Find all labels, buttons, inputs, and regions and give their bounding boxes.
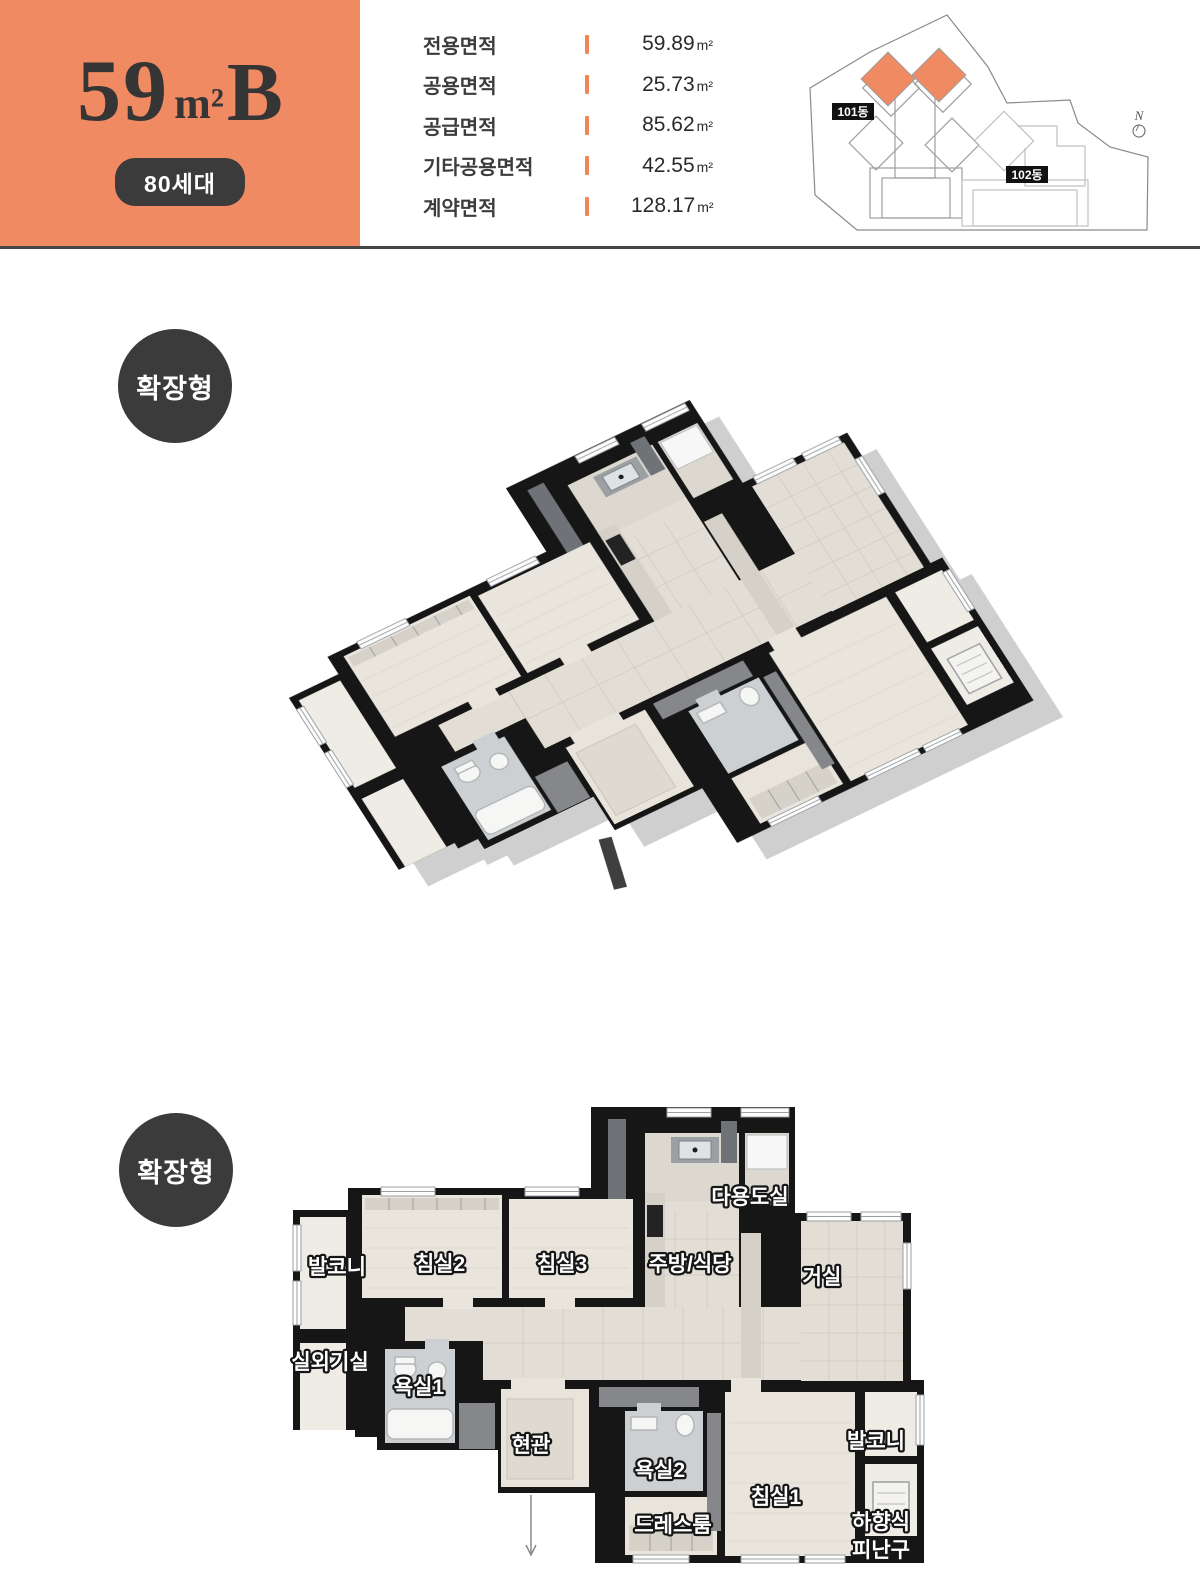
label-bedroom2: 침실2	[415, 1253, 465, 1276]
area-row: 기타공용면적 42.55m²	[423, 146, 713, 187]
label-bath2: 욕실2	[635, 1459, 685, 1482]
label-outdoor-unit: 실외기실	[291, 1351, 368, 1374]
label-balcony-right: 발코니	[847, 1430, 905, 1453]
label-kitchen: 주방/식당	[648, 1253, 731, 1276]
area-label: 전용면적	[423, 30, 543, 59]
area-value: 59.89m²	[631, 32, 713, 56]
label-living: 거실	[803, 1266, 842, 1289]
label-entrance: 현관	[512, 1434, 551, 1457]
entrance-arrow	[526, 1495, 536, 1555]
label-escape-2: 피난구	[852, 1539, 910, 1562]
unit-number: 59	[77, 48, 169, 136]
area-value: 85.62m²	[631, 113, 713, 137]
brochure-page: 59m²B 80세대 전용면적 59.89m² 공용면적 25.73m² 공급면…	[0, 0, 1200, 1592]
building-102-label: 102동	[1011, 168, 1042, 182]
area-table: 전용면적 59.89m² 공용면적 25.73m² 공급면적 85.62m² 기…	[423, 24, 713, 227]
site-boundary	[810, 15, 1148, 230]
divider-tick	[585, 197, 589, 216]
unit-sqm: m²	[174, 82, 224, 126]
label-escape-1: 하향식	[852, 1510, 910, 1534]
divider-tick	[585, 35, 589, 54]
divider-tick	[585, 156, 589, 175]
area-row: 공용면적 25.73m²	[423, 65, 713, 106]
unit-type-title: 59m²B	[77, 48, 283, 136]
households-badge: 80세대	[115, 158, 245, 206]
label-balcony-left: 발코니	[308, 1256, 366, 1279]
divider-tick	[585, 75, 589, 94]
flat-plan-badge: 확장형	[119, 1113, 233, 1227]
divider-tick	[585, 116, 589, 135]
iso-plan-badge: 확장형	[118, 329, 232, 443]
area-label: 공급면적	[423, 111, 543, 140]
north-label: N	[1134, 108, 1145, 123]
flat-floorplan: 발코니 침실2 침실3 주방/식당 거실 다용도실 실외기실 욕실1 현관 욕실…	[293, 1093, 925, 1592]
label-bedroom3: 침실3	[537, 1253, 587, 1276]
unit-suffix: B	[227, 51, 283, 135]
north-compass: N	[1133, 108, 1145, 137]
header-divider	[0, 246, 1200, 249]
label-bedroom1: 침실1	[751, 1486, 802, 1509]
label-utility: 다용도실	[711, 1186, 788, 1209]
area-value: 42.55m²	[631, 154, 713, 178]
area-label: 공용면적	[423, 70, 543, 99]
area-label: 기타공용면적	[423, 151, 543, 180]
iso-open-door	[599, 837, 627, 890]
area-row: 공급면적 85.62m²	[423, 105, 713, 146]
area-row: 계약면적 128.17m²	[423, 186, 713, 227]
unit-type-block: 59m²B 80세대	[0, 0, 360, 246]
site-plan: 101동 102동 N	[795, 8, 1190, 240]
iso-floorplan	[230, 333, 1049, 997]
area-value: 128.17m²	[631, 194, 713, 218]
label-dressroom: 드레스룸	[634, 1514, 711, 1537]
label-bath1: 욕실1	[394, 1376, 445, 1399]
building-101-label: 101동	[837, 105, 868, 119]
area-label: 계약면적	[423, 192, 543, 221]
compass-circle	[1133, 125, 1145, 137]
area-value: 25.73m²	[631, 73, 713, 97]
area-row: 전용면적 59.89m²	[423, 24, 713, 65]
